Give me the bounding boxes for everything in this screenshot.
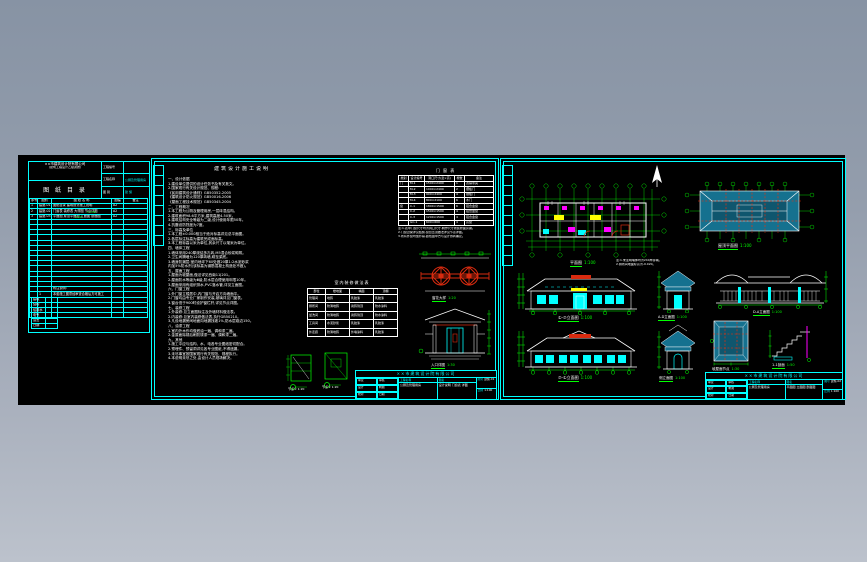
- ornament-caption: 窗花大样1:20: [432, 296, 456, 300]
- notes-line: 4.本说明未尽之处,由设计人员现场解决。: [168, 356, 304, 361]
- node-caption-2: 节点② 1:20: [322, 386, 338, 390]
- node-details-drawing: [285, 351, 355, 391]
- drawing-number: 建施-02: [831, 380, 841, 383]
- index-field-row: 图 别 建 施: [102, 187, 149, 198]
- titleblock-company: ××市建筑设计院有限公司: [706, 373, 842, 380]
- notes-titleblock: ××市建筑设计院有限公司 审定审核设计制图校对日期 工程名称 公厕及管理用房 图…: [355, 370, 497, 400]
- index-field-value: 建 施: [124, 187, 149, 198]
- finish-row: 盥洗间防滑地砖 瓷砖到顶防水涂料: [308, 311, 398, 320]
- north-arrow-icon: [648, 163, 666, 189]
- index-sign-table: 建筑 结构 给排水 电气 会签 日期: [31, 297, 58, 329]
- notes-margin-strip: [153, 165, 164, 246]
- floor-plan-drawing: [518, 181, 668, 261]
- drawing-name: 平面图 立面图 剖面图: [786, 385, 823, 399]
- sign-value: [46, 323, 58, 328]
- index-field-value: 公厕及管理用房: [124, 174, 149, 185]
- drawing-scale: 1:100: [484, 389, 492, 392]
- elevation-1-drawing: [515, 267, 645, 315]
- window-table-title: 门 窗 表: [398, 169, 493, 174]
- finish-row: 工具间水泥砂浆 乳胶漆乳胶漆: [308, 320, 398, 329]
- company-line2: (建筑工程设计乙级资质): [29, 166, 101, 170]
- plans-margin-strip: [502, 165, 513, 266]
- window-table: 类别设计编号洞口尺寸(宽×高)樘数备注 门M-1 1500×24001 双扇带亮…: [398, 175, 494, 226]
- index-field-row: 工程名称 公厕及管理用房: [102, 174, 149, 186]
- lattice-ornament-drawing: [417, 251, 493, 295]
- titleblock-label: 校对: [706, 393, 726, 399]
- index-field-label: 工程名称: [102, 174, 124, 185]
- plan-caption: 平面图1:100: [570, 261, 596, 266]
- notes-title: 建筑设计施工说明: [214, 166, 270, 172]
- index-field-label: 工程编号: [102, 162, 124, 173]
- desktop-background: { "colors":{"cyan":"#00ffff","green":"#0…: [0, 0, 867, 562]
- titleblock-label: 审定: [356, 378, 377, 385]
- veranda-caption: D-A立面图1:100: [753, 310, 782, 314]
- index-green-mark-2: 1:20: [75, 216, 82, 220]
- project-name: 公厕及管理用房: [399, 383, 437, 399]
- index-title: 图 纸 目 录: [29, 181, 101, 198]
- entry-caption: 入口详图1:30: [431, 363, 455, 367]
- window-table-notes: 注:1.表中门窗尺寸均为洞口尺寸,制作尺寸按装修面另减。2.门窗过梁详见结施,窗…: [398, 227, 495, 239]
- finish-table-title: 室内装修做法表: [307, 281, 397, 286]
- veranda-elevation-drawing: [710, 263, 830, 309]
- elevation-2-caption: ⑦-①立面图1:100: [558, 376, 592, 381]
- cad-viewport[interactable]: ××市建筑设计院有限公司 (建筑工程设计乙级资质) 图 纸 目 录 工程编号 工…: [18, 155, 845, 405]
- titleblock-label: 校对: [356, 392, 377, 399]
- side-elevation-2-drawing: [655, 321, 701, 375]
- roof-detail-drawing: [710, 318, 752, 366]
- window-row: GC-1 600×6004 高窗: [399, 220, 494, 226]
- titleblock-label: 制图: [377, 385, 398, 392]
- index-field-row: 工程编号: [102, 162, 149, 174]
- sign-label: 日期: [32, 323, 46, 328]
- titleblock-label: 日期: [726, 393, 746, 399]
- cell-size: [112, 313, 124, 318]
- drawing-scale: 1:100: [831, 390, 839, 393]
- drawing-name: 设计说明 门窗表 详图: [438, 383, 476, 399]
- finish-row: 管理间地砖 乳胶漆乳胶漆: [308, 294, 398, 303]
- project-name: 公厕及管理用房: [748, 385, 785, 399]
- index-field-value: [124, 162, 149, 173]
- side-elevation-1-caption: A-D立面图1:100: [658, 315, 687, 319]
- index-green-mark-1: 1:100: [87, 211, 96, 215]
- entry-detail-drawing: [417, 304, 493, 362]
- drawing-number: 建施-01: [484, 378, 494, 381]
- sheet-drawing-index: ××市建筑设计院有限公司 (建筑工程设计乙级资质) 图 纸 目 录 工程编号 工…: [28, 161, 150, 333]
- cell-name: [52, 313, 112, 318]
- finish-table: 部位楼地面墙面顶棚 管理间地砖 乳胶漆乳胶漆 厕所间防滑地砖 瓷砖到顶防水涂料 …: [307, 288, 398, 337]
- roof-plan-drawing: [682, 181, 817, 243]
- notes-text-column: 一、设计依据1.建设单位提供的设计任务书及有关批文。2.国家现行有关设计规范、规…: [168, 177, 304, 365]
- node-caption-1: 节点① 1:20: [288, 388, 304, 392]
- cell-note: [124, 313, 148, 318]
- roof-detail-caption: 坡屋面节点1:30: [712, 367, 739, 371]
- titleblock-company: ××市建筑设计院有限公司: [356, 371, 496, 378]
- elevation-1-caption: ①-⑦立面图1:100: [558, 316, 592, 321]
- titleblock-label: 审核: [377, 378, 398, 385]
- index-field-label: 图 别: [102, 187, 124, 198]
- titleblock-label: 设计: [356, 385, 377, 392]
- side-elevation-2-caption: 侧立面图1:100: [659, 376, 685, 380]
- index-company: ××市建筑设计院有限公司 (建筑工程设计乙级资质): [29, 162, 101, 181]
- roof-caption: 屋顶平面图1:100: [718, 244, 752, 249]
- side-elevation-1-drawing: [655, 263, 701, 313]
- window-note-line: 3.所有外窗均加纱扇,颜色由甲方与设计协商确定。: [398, 235, 495, 239]
- elevation-2-drawing: [515, 325, 645, 375]
- finish-row: 外走廊防滑地砖 外墙涂料乳胶漆: [308, 328, 398, 337]
- finish-row: 厕所间防滑地砖 瓷砖到顶防水涂料: [308, 303, 398, 312]
- index-fields: 工程编号 工程名称 公厕及管理用房 图 别 建 施: [102, 162, 149, 198]
- section-detail-drawing: [768, 320, 812, 362]
- index-header: ××市建筑设计院有限公司 (建筑工程设计乙级资质) 图 纸 目 录 工程编号 工…: [29, 162, 149, 198]
- plans-titleblock: ××市建筑设计院有限公司 审定审核设计制图校对日期 工程名称 公厕及管理用房 图…: [705, 372, 843, 400]
- titleblock-label: 日期: [377, 392, 398, 399]
- section-detail-caption: 1-1剖面1:50: [772, 363, 795, 367]
- sign-row: 日期: [32, 323, 58, 328]
